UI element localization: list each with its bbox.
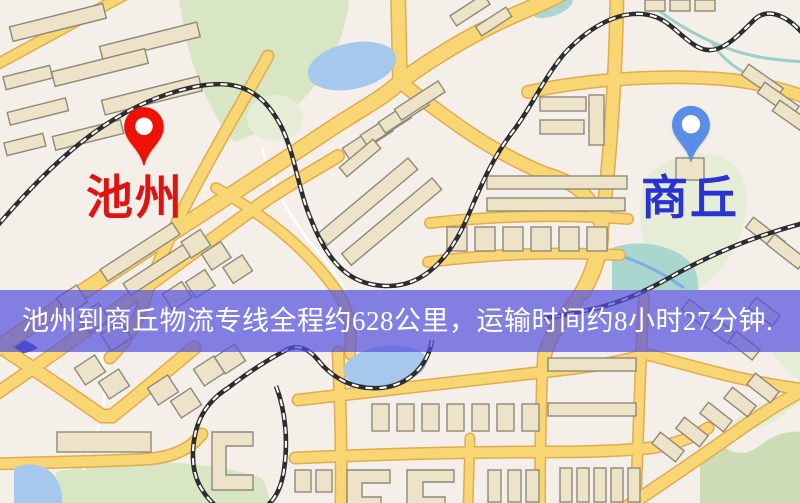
origin-label: 池州 (86, 176, 184, 223)
origin-pin-icon (120, 105, 168, 168)
route-info-text: 池州到商丘物流专线全程约628公里，运输时间约8小时27分钟. (22, 308, 773, 335)
route-info-banner: 池州到商丘物流专线全程约628公里，运输时间约8小时27分钟. (0, 290, 800, 352)
map-background (0, 0, 800, 503)
destination-pin-dot (682, 115, 700, 133)
destination-pin-shape (672, 106, 710, 162)
origin-pin-shape (124, 107, 164, 165)
destination-label: 商丘 (641, 176, 739, 223)
origin-pin-dot (135, 118, 153, 136)
map-view: 池州 商丘 池州到商丘物流专线全程约628公里，运输时间约8小时27分钟. (0, 0, 800, 503)
destination-pin-icon (668, 102, 714, 166)
